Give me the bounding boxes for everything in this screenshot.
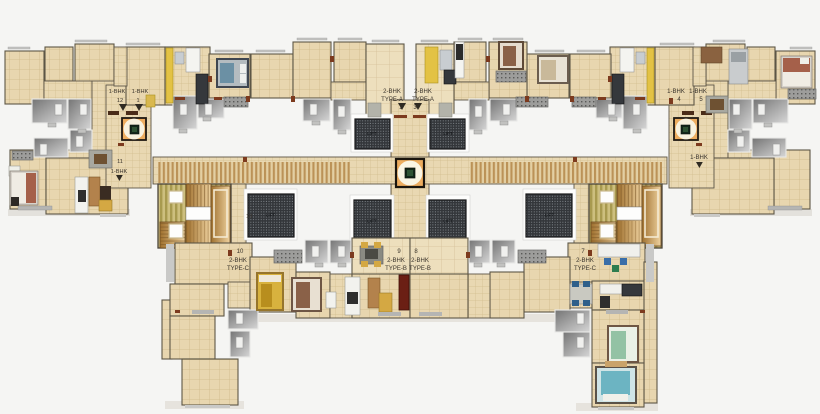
svg-text:1-BHK: 1-BHK: [111, 169, 128, 175]
svg-text:1-BHK: 1-BHK: [109, 89, 126, 95]
svg-text:LIFT: LIFT: [545, 213, 555, 218]
svg-text:10: 10: [246, 214, 252, 220]
svg-text:LIFT: LIFT: [367, 219, 377, 224]
svg-text:2-BHK: 2-BHK: [411, 258, 429, 264]
svg-text:TYPE-B: TYPE-B: [409, 266, 431, 272]
svg-text:1-BHK: 1-BHK: [667, 89, 685, 95]
svg-text:TYPE-A: TYPE-A: [381, 97, 403, 103]
svg-text:1-BHK: 1-BHK: [132, 89, 149, 95]
svg-text:1-BHK: 1-BHK: [689, 89, 707, 95]
svg-text:1-BHK: 1-BHK: [690, 155, 708, 161]
svg-text:11: 11: [117, 159, 123, 165]
svg-text:2-BHK: 2-BHK: [229, 258, 247, 264]
svg-text:12: 12: [117, 98, 123, 104]
svg-text:TYPE-C: TYPE-C: [227, 266, 250, 272]
svg-text:TYPE-B: TYPE-B: [385, 266, 407, 272]
svg-text:LIFT: LIFT: [443, 219, 453, 224]
svg-text:2-BHK: 2-BHK: [383, 89, 401, 95]
svg-text:2-BHK: 2-BHK: [576, 258, 594, 264]
svg-text:2-BHK: 2-BHK: [414, 89, 432, 95]
svg-text:10: 10: [237, 249, 244, 255]
svg-text:1: 1: [136, 98, 139, 104]
svg-text:LIFT: LIFT: [266, 213, 276, 218]
svg-text:TYPE-C: TYPE-C: [574, 266, 597, 272]
svg-text:2-BHK: 2-BHK: [387, 258, 405, 264]
svg-text:TYPE-A: TYPE-A: [412, 97, 434, 103]
svg-text:LIFT: LIFT: [367, 131, 377, 136]
svg-text:LIFT: LIFT: [443, 131, 453, 136]
